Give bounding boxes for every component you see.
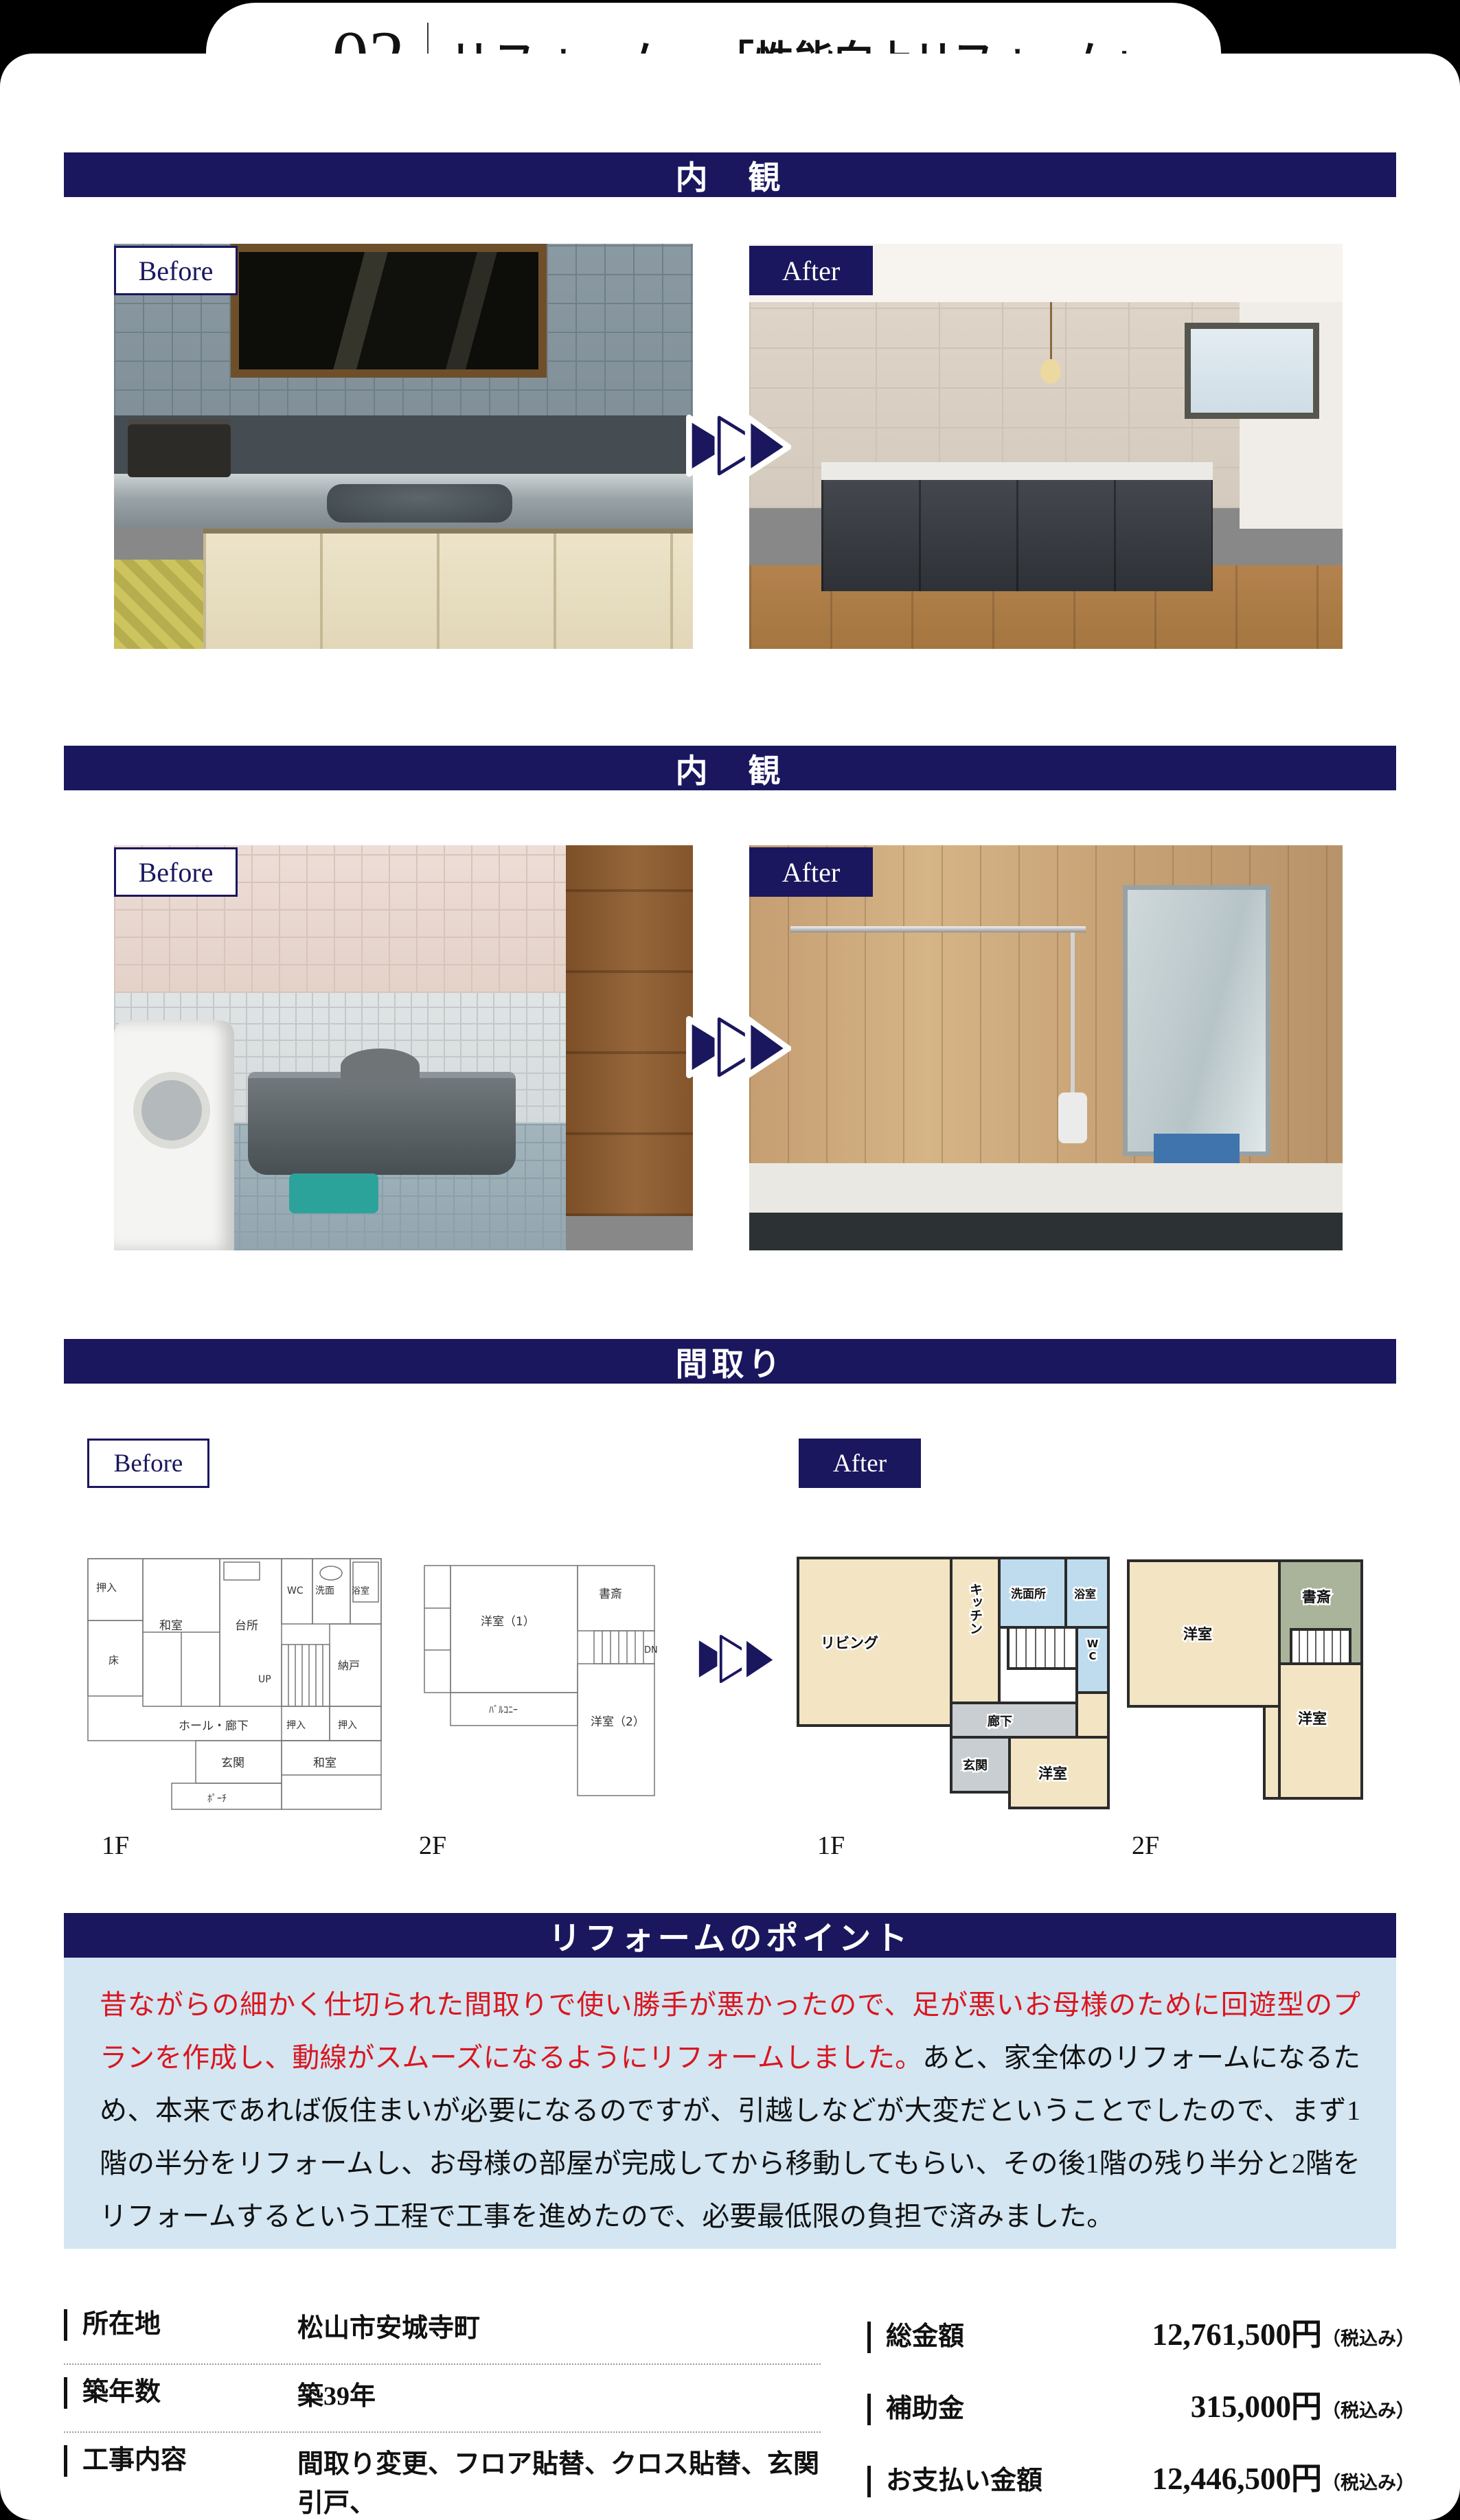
room-label: 洗面所 (1011, 1587, 1046, 1601)
photo-sink (327, 484, 512, 523)
floorplan-before-2f: 洋室（1） 書斎 DN ﾊﾞﾙｺﾆｰ 洋室（2） (412, 1548, 663, 1811)
floor-caption-after-2f: 2F (1132, 1831, 1159, 1861)
before-label-floorplan: Before (87, 1439, 209, 1488)
room-label: 洋室 (1038, 1765, 1067, 1782)
detail-row-total: 総金額 12,761,500円（税込み） (867, 2297, 1415, 2369)
detail-label: 築年数 (64, 2377, 264, 2409)
section-header-interior-1: 内 観 (64, 152, 1396, 197)
room-label: 書斎 (1302, 1589, 1331, 1605)
photo-window (231, 244, 547, 378)
detail-row-subsidy: 補助金 315,000円（税込み） (867, 2369, 1415, 2441)
detail-row-payment: お支払い金額 12,446,500円（税込み） (867, 2441, 1415, 2513)
points-paragraph: 昔ながらの細かく仕切られた間取りで使い勝手が悪かったので、足が悪いお母様のために… (100, 1978, 1360, 2243)
room-label: 洋室 (1183, 1626, 1212, 1642)
photo-bathtub (248, 1072, 516, 1175)
floorplan-before-1f: 押入 床 和室 台所 WC 洗面 浴室 UP 納戸 ホール・廊下 押入 押入 玄… (82, 1548, 388, 1811)
floor-caption-before-2f: 2F (419, 1831, 446, 1861)
room-label: 押入 (338, 1720, 357, 1731)
floorplan-after-1f: リビング キッチン 洗面所 浴室 WC 廊下 玄関 洋室 (790, 1548, 1116, 1811)
room-label: 洋室（2） (591, 1715, 645, 1729)
shower-head (1058, 1092, 1087, 1143)
room-label: 押入 (96, 1581, 117, 1594)
before-after-arrow-icon (680, 1004, 791, 1090)
before-label-interior-1: Before (114, 246, 238, 295)
shower-bar (790, 926, 1086, 932)
points-panel: 昔ながらの細かく仕切られた間取りで使い勝手が悪かったので、足が悪いお母様のために… (64, 1958, 1396, 2249)
before-label-interior-2: Before (114, 847, 238, 897)
room-label: 浴室 (1074, 1588, 1096, 1601)
washing-machine-door (133, 1072, 210, 1149)
room-label: 玄関 (963, 1758, 988, 1773)
photo-wash-bowl (341, 1049, 420, 1084)
room-label: WC (1086, 1638, 1099, 1662)
amount-value: 315,000円 (1191, 2390, 1322, 2424)
before-after-arrow-icon (680, 402, 791, 489)
pendant-bulb (1040, 359, 1061, 384)
project-details-left: 所在地 松山市安城寺町 築年数 築39年 工事内容 間取り変更、フロア貼替、クロ… (64, 2297, 821, 2520)
after-label-interior-1: After (749, 246, 873, 295)
photo-bath-stool (289, 1173, 378, 1213)
tax-note: （税込み） (1322, 2401, 1415, 2421)
detail-row-location: 所在地 松山市安城寺町 (64, 2297, 821, 2365)
amount-value: 12,761,500円 (1152, 2317, 1322, 2352)
detail-value: 間取り変更、フロア貼替、クロス貼替、玄関引戸、 水廻り設備一式、サッシ交換、外構 (264, 2445, 821, 2520)
detail-amount: 12,446,500円（税込み） (1152, 2453, 1415, 2498)
room-label: 浴室 (352, 1585, 369, 1596)
section-header-floorplan: 間取り (64, 1339, 1396, 1384)
kitchen-island (821, 480, 1213, 591)
detail-amount: 315,000円（税込み） (1191, 2381, 1415, 2426)
tax-note: （税込み） (1322, 2328, 1415, 2349)
room-label: 洗面 (315, 1585, 334, 1596)
bathroom-after-photo (749, 845, 1343, 1250)
shower-hose (1071, 932, 1075, 1104)
page-background: case 02 リフォーム 「性能向上リフォーム」 内 観 Before (0, 0, 1460, 2520)
detail-row-work: 工事内容 間取り変更、フロア貼替、クロス貼替、玄関引戸、 水廻り設備一式、サッシ… (64, 2433, 821, 2520)
floor-caption-before-1f: 1F (102, 1831, 129, 1861)
room-label: キッチン (968, 1583, 983, 1635)
detail-label: 総金額 (867, 2322, 1068, 2353)
floor-caption-after-1f: 1F (817, 1831, 845, 1861)
photo-cabinets (203, 529, 693, 649)
bathroom-before-photo (114, 845, 693, 1250)
room-label: 和室 (313, 1756, 337, 1770)
room-label: UP (258, 1674, 271, 1685)
photo-window (1185, 323, 1319, 419)
after-label-floorplan: After (799, 1439, 921, 1488)
section-header-points: リフォームのポイント (64, 1913, 1396, 1958)
room-label: ﾎﾟｰﾁ (207, 1794, 227, 1805)
content-card: 内 観 Before After (0, 54, 1460, 2520)
room-label: 和室 (159, 1619, 183, 1633)
kitchen-after-photo (749, 244, 1343, 649)
room-label: 洋室（1） (481, 1615, 535, 1629)
photo-floor (114, 560, 203, 649)
detail-label: 所在地 (64, 2309, 264, 2341)
room-label: リビング (821, 1635, 878, 1651)
room-label: WC (287, 1585, 304, 1596)
detail-label: 補助金 (867, 2394, 1068, 2425)
room-label: 床 (109, 1654, 119, 1666)
room-label: 玄関 (221, 1756, 244, 1770)
photo-wood-door (566, 845, 693, 1216)
pendant-light (1050, 302, 1052, 361)
tax-note: （税込み） (1322, 2473, 1415, 2493)
room-label: ﾊﾞﾙｺﾆｰ (489, 1705, 518, 1716)
bathtub-ledge (749, 1163, 1343, 1213)
room-label: 台所 (235, 1619, 258, 1633)
project-details-right: 総金額 12,761,500円（税込み） 補助金 315,000円（税込み） お… (867, 2297, 1415, 2513)
section-header-interior-2: 内 観 (64, 746, 1396, 790)
detail-row-age: 築年数 築39年 (64, 2365, 821, 2433)
room-label: 納戸 (338, 1659, 360, 1672)
detail-amount: 12,761,500円（税込み） (1152, 2309, 1415, 2354)
photo-mirror (1123, 885, 1270, 1156)
kitchen-before-photo (114, 244, 693, 649)
room-label: ホール・廊下 (179, 1719, 249, 1733)
room-label: 書斎 (599, 1588, 622, 1601)
detail-value: 松山市安城寺町 (264, 2309, 480, 2348)
amount-value: 12,446,500円 (1152, 2462, 1322, 2496)
room-label: 押入 (286, 1720, 306, 1731)
floorplan-after-2f: 洋室 書斎 洋室 (1118, 1548, 1370, 1811)
room-label: 廊下 (988, 1714, 1012, 1729)
photo-toaster-oven (128, 419, 231, 477)
after-label-interior-2: After (749, 847, 873, 897)
detail-label: 工事内容 (64, 2445, 264, 2477)
detail-label: お支払い金額 (867, 2466, 1068, 2497)
room-label: DN (644, 1645, 658, 1656)
photo-dark-floor (749, 1213, 1343, 1250)
room-label: 洋室 (1298, 1710, 1327, 1727)
before-after-arrow-icon (688, 1625, 780, 1693)
detail-value: 築39年 (264, 2377, 376, 2416)
island-countertop (821, 462, 1213, 480)
